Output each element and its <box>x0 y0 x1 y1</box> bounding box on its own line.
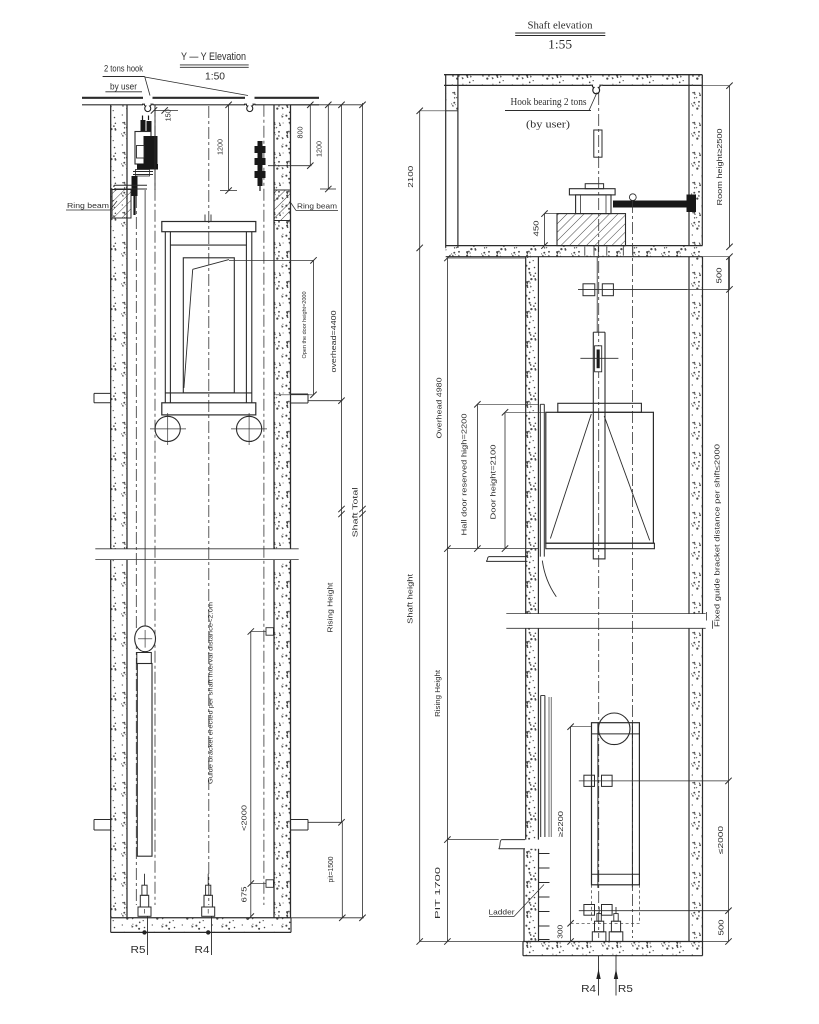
svg-text:R5: R5 <box>618 984 633 995</box>
svg-text:500: 500 <box>717 920 726 936</box>
svg-text:Hook bearing 2 tons: Hook bearing 2 tons <box>511 97 587 108</box>
svg-text:R4: R4 <box>581 984 596 995</box>
svg-text:Room height≥2500: Room height≥2500 <box>715 129 724 206</box>
svg-text:pit=1500: pit=1500 <box>326 857 335 883</box>
svg-text:≤2000: ≤2000 <box>716 826 725 854</box>
svg-text:Ring beam: Ring beam <box>67 201 109 210</box>
svg-text:Hall door reserved high=2200: Hall door reserved high=2200 <box>460 414 469 536</box>
svg-text:PIT 1700: PIT 1700 <box>433 867 442 919</box>
svg-text:Rising Height: Rising Height <box>326 582 335 633</box>
svg-text:Ring beam: Ring beam <box>297 202 337 211</box>
svg-text:<2000: <2000 <box>240 805 249 831</box>
svg-text:≥2200: ≥2200 <box>556 811 565 837</box>
svg-text:Door height=2100: Door height=2100 <box>489 445 498 520</box>
svg-text:1200: 1200 <box>216 139 225 155</box>
svg-text:by user: by user <box>110 82 137 92</box>
svg-text:1:55: 1:55 <box>548 38 572 52</box>
svg-text:Shaft elevation: Shaft elevation <box>528 20 593 32</box>
svg-text:450: 450 <box>532 221 541 237</box>
svg-text:R4: R4 <box>195 945 210 956</box>
svg-text:500: 500 <box>715 268 724 284</box>
svg-text:Guide bracket erected per shaf: Guide bracket erected per shaft interval… <box>208 602 215 784</box>
svg-text:overhead=4400: overhead=4400 <box>329 311 338 373</box>
svg-text:(by user): (by user) <box>526 120 571 131</box>
svg-text:Shaft height: Shaft height <box>406 573 415 624</box>
svg-text:Overhead 4980: Overhead 4980 <box>434 378 443 439</box>
svg-text:2100: 2100 <box>406 166 415 188</box>
svg-text:1200: 1200 <box>315 141 324 157</box>
svg-text:675: 675 <box>240 887 249 903</box>
svg-text:Shaft Total: Shaft Total <box>350 487 359 537</box>
svg-text:Open the door height=2000: Open the door height=2000 <box>302 292 308 359</box>
svg-text:800: 800 <box>296 127 305 139</box>
svg-text:1:50: 1:50 <box>205 71 225 83</box>
svg-text:150: 150 <box>163 109 172 121</box>
svg-text:Rising Height: Rising Height <box>433 669 442 717</box>
svg-text:Fixed guide bracket distance p: Fixed guide bracket distance per shift≤2… <box>715 444 722 627</box>
svg-text:R5: R5 <box>131 945 146 956</box>
svg-text:Ladder: Ladder <box>489 908 516 917</box>
svg-text:Y — Y Elevation: Y — Y Elevation <box>181 51 246 63</box>
svg-text:2 tons hook: 2 tons hook <box>104 64 144 74</box>
svg-text:300: 300 <box>556 925 565 939</box>
